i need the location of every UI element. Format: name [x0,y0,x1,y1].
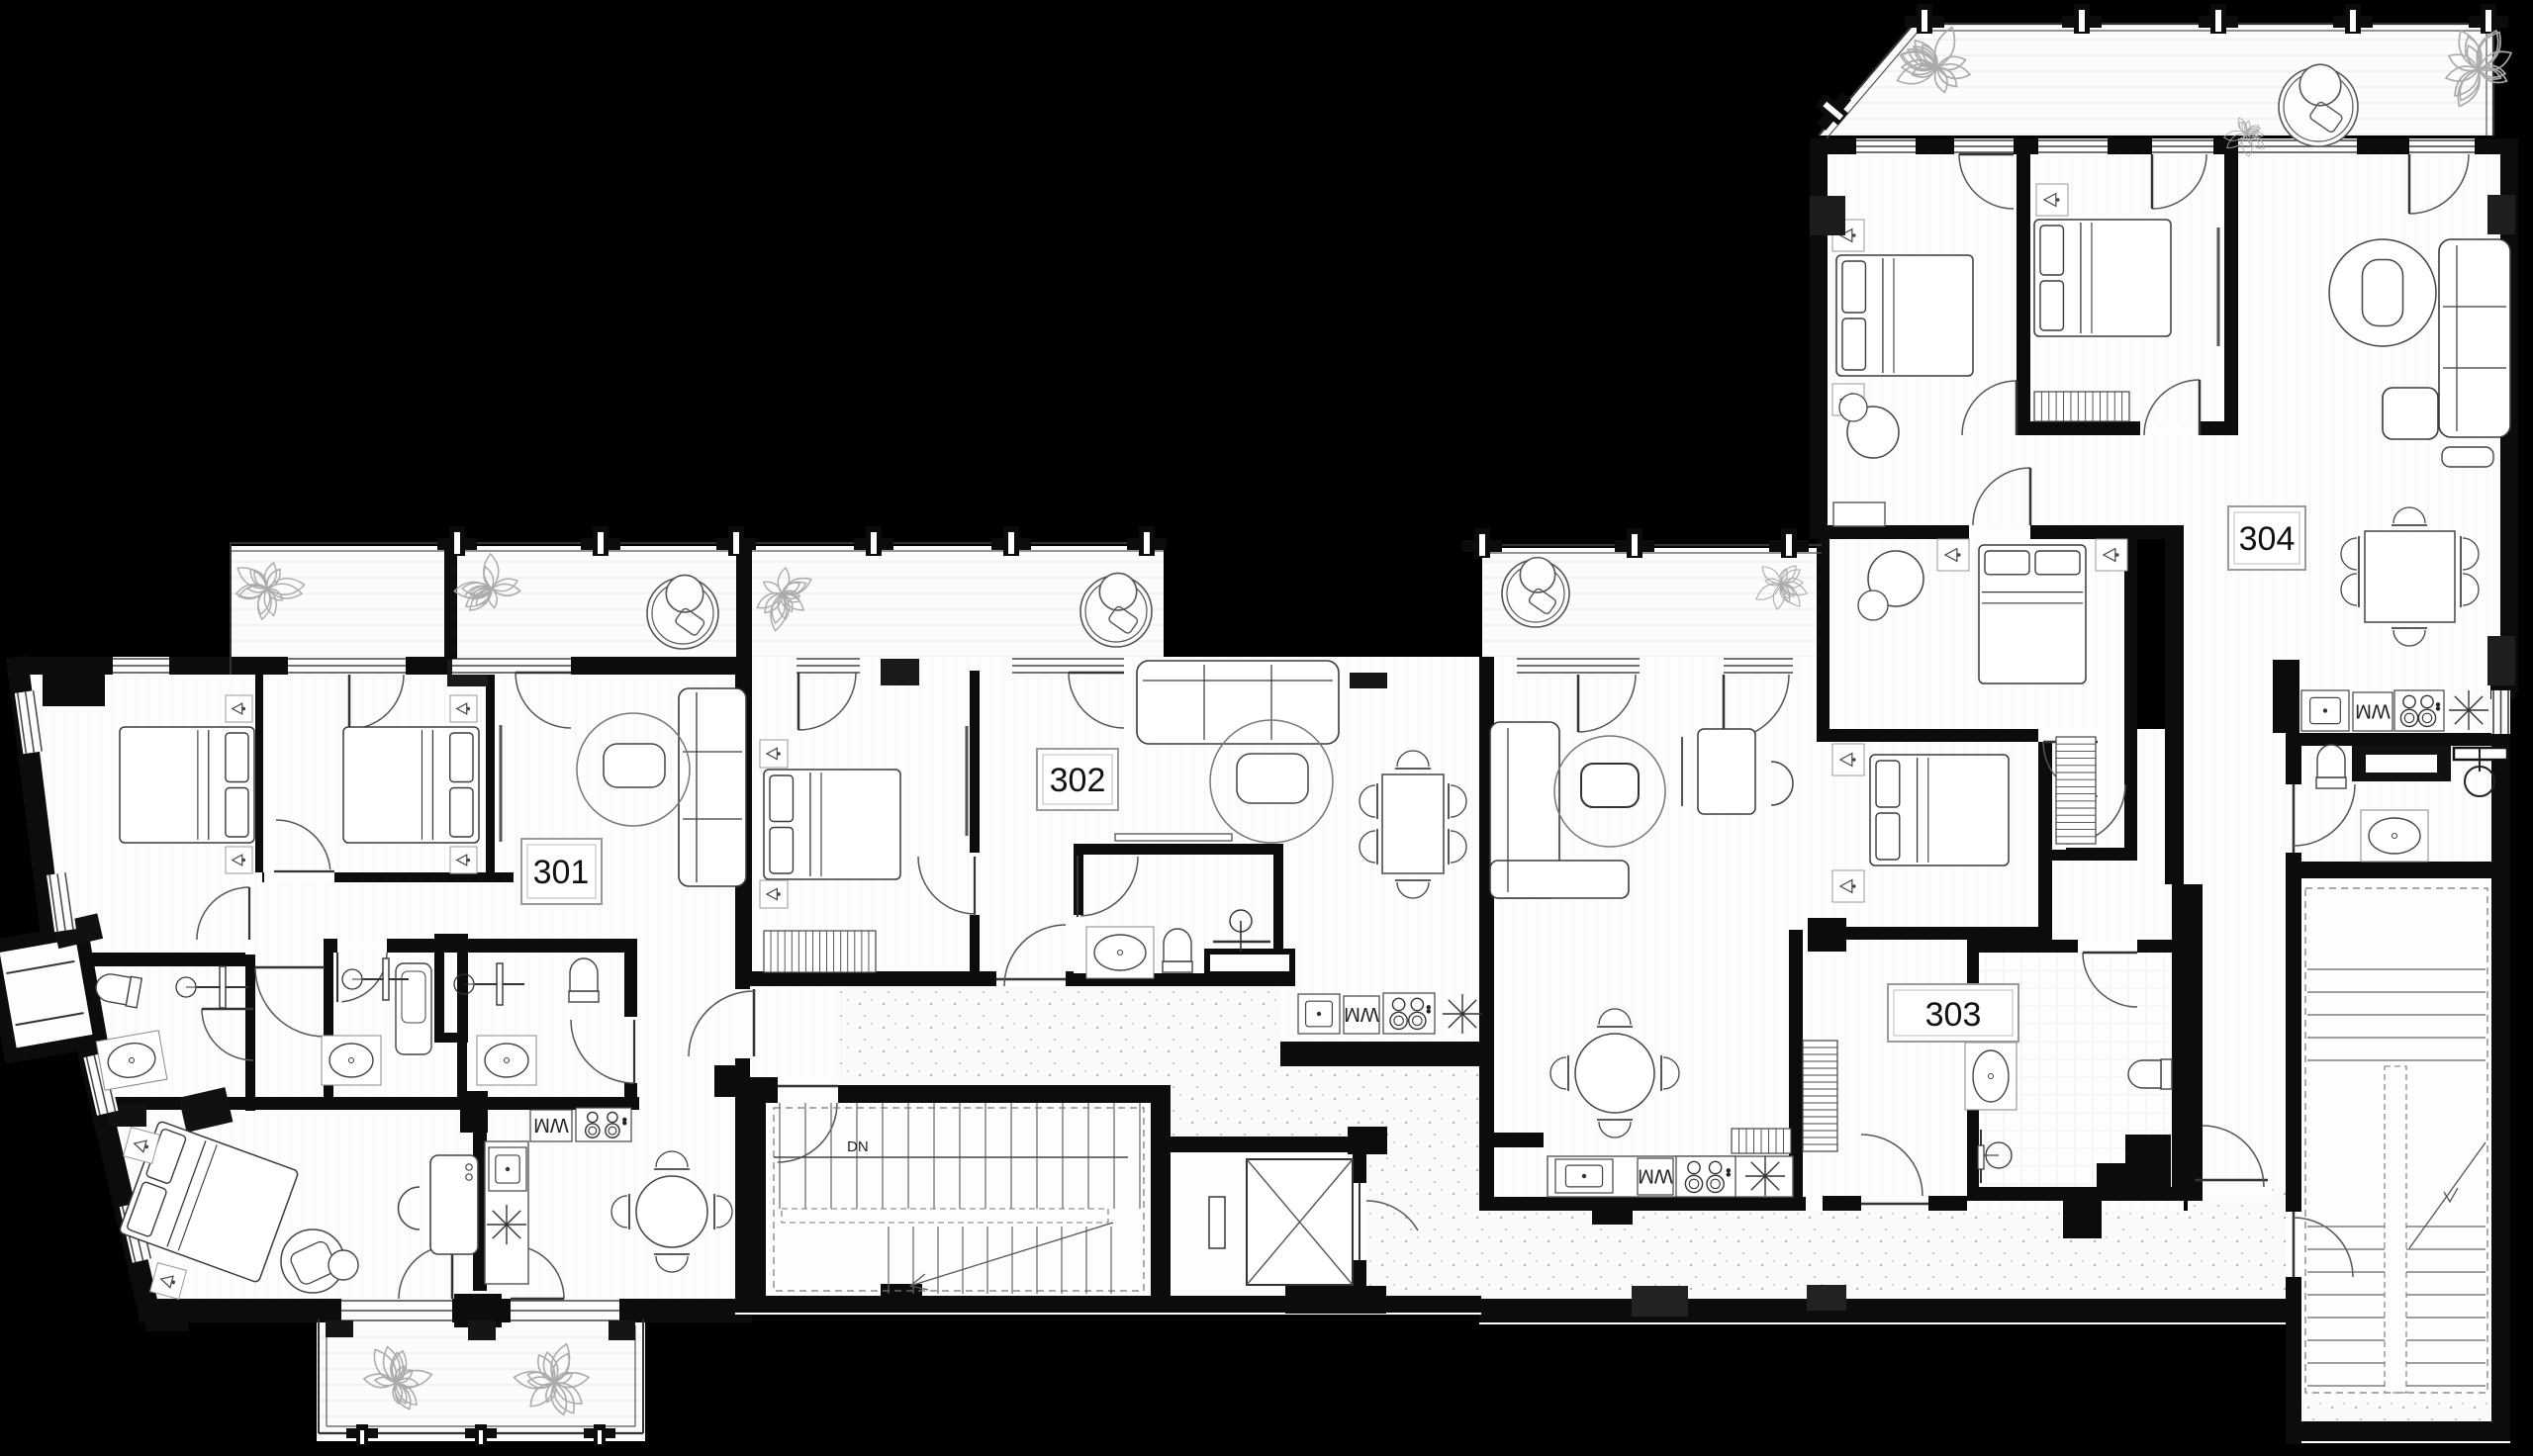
svg-text:302: 302 [1050,762,1106,799]
svg-text:WM: WM [1638,1165,1673,1187]
svg-text:304: 304 [2239,520,2296,558]
svg-text:WM: WM [1344,1003,1379,1025]
svg-text:WM: WM [2355,700,2391,722]
svg-text:303: 303 [1925,996,1982,1034]
svg-text:301: 301 [533,854,590,891]
svg-text:DN: DN [847,1138,869,1155]
svg-text:WM: WM [533,1114,569,1136]
